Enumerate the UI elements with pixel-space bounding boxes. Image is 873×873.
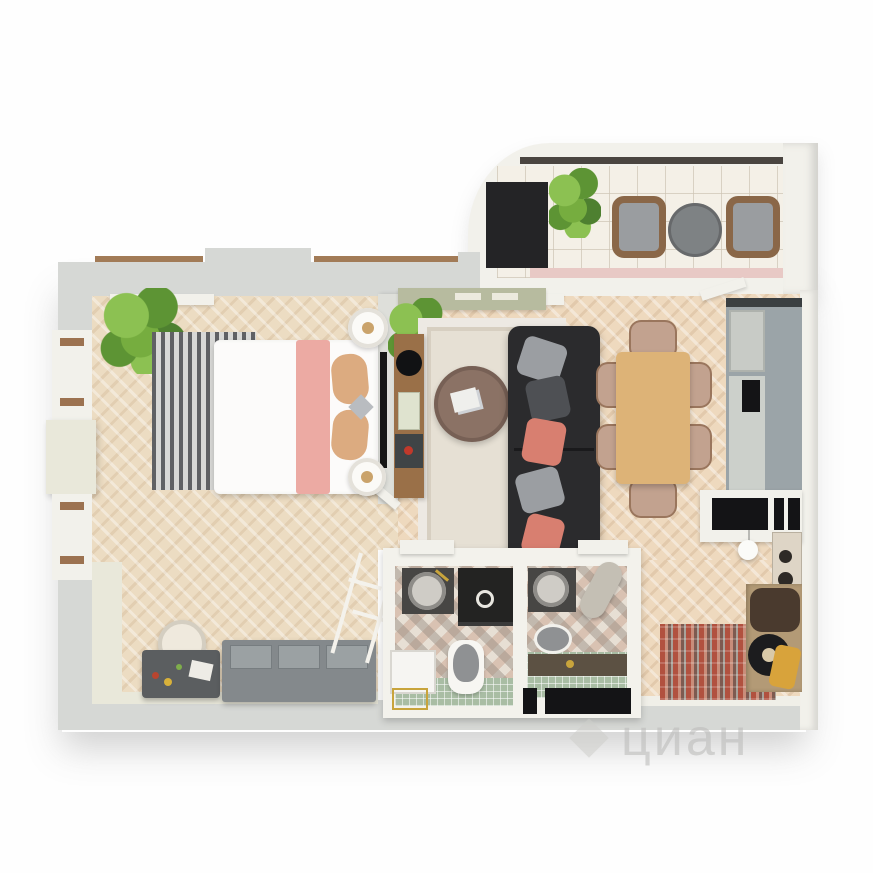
balcony-round-table <box>668 203 722 257</box>
balcony-armchair-right <box>726 196 780 258</box>
bath2-toilet-lid <box>534 624 572 654</box>
pendant-lamp <box>738 540 758 560</box>
sage-cabinet-tray-2 <box>492 293 518 300</box>
left-window-1-frame <box>60 338 84 346</box>
wardrobe-panel-1 <box>230 645 272 669</box>
bath2-washbasin <box>533 571 569 607</box>
bath2-vanity-knob <box>566 660 574 668</box>
cooktop <box>742 380 760 412</box>
closet-black-panel-2 <box>774 498 784 530</box>
bath1-shower-glass <box>458 622 513 626</box>
nightstand-bottom-cup <box>361 471 373 483</box>
balcony-dark-niche <box>486 182 548 268</box>
watermark: циан <box>575 705 835 771</box>
wardrobe-panel-2 <box>278 645 320 669</box>
left-window-2-frame <box>60 502 84 510</box>
left-window-1-frame2 <box>60 398 84 406</box>
vanity-item-red <box>152 672 159 679</box>
stove-burner-1 <box>779 550 792 563</box>
vanity-item-green <box>176 664 182 670</box>
closet-black-panel-1 <box>712 498 768 530</box>
floorplan-canvas: циан <box>0 0 873 873</box>
bath1-shower-head <box>476 590 494 608</box>
balcony-glazing <box>520 157 786 164</box>
sofa-pillow-coral-1 <box>520 417 567 467</box>
window-sill-line-1 <box>95 256 203 262</box>
balcony-floor-accent-stripe <box>530 268 785 278</box>
dining-chair-bottom <box>629 478 677 518</box>
diamond-icon <box>569 718 609 758</box>
sphere-lamp <box>396 350 422 376</box>
sideboard-books <box>398 392 420 430</box>
sofa-pillow-dark <box>524 374 572 423</box>
right-wall <box>800 290 818 730</box>
closet-black-panel-3 <box>788 498 800 530</box>
wall-pier <box>46 420 96 494</box>
left-inner-face <box>92 562 122 704</box>
wall-tv <box>380 352 387 468</box>
sage-cabinet-tray-1 <box>455 293 481 300</box>
bathroom-1-door-leaf <box>400 540 454 554</box>
left-window-2-frame2 <box>60 556 84 564</box>
record-player-dot <box>404 446 413 455</box>
bath1-washbasin <box>408 572 446 610</box>
bath2-dark-vanity <box>528 654 627 676</box>
brass-rack <box>392 688 428 710</box>
coat-pile <box>750 588 800 632</box>
watermark-text: циан <box>621 708 749 768</box>
kitchen-dark-edge <box>726 298 802 307</box>
balcony-armchair-left <box>612 196 666 258</box>
bedroom-door-opening <box>378 504 398 550</box>
nightstand-top-cup <box>362 322 374 334</box>
bathroom-2-door-leaf <box>578 540 628 554</box>
bath1-toilet-lid <box>453 644 479 682</box>
balcony-right-wall <box>783 143 818 295</box>
window-sill-line-2 <box>314 256 476 262</box>
bed-pink-throw <box>296 340 330 494</box>
balcony-threshold <box>563 282 703 296</box>
entry-mat-small <box>523 688 537 714</box>
top-wall-tooth <box>205 248 311 264</box>
kitchen-upper-cabinet <box>729 310 765 372</box>
dining-table <box>616 352 690 484</box>
vanity-item-yellow <box>164 678 172 686</box>
balcony-potted-plant <box>549 168 601 238</box>
